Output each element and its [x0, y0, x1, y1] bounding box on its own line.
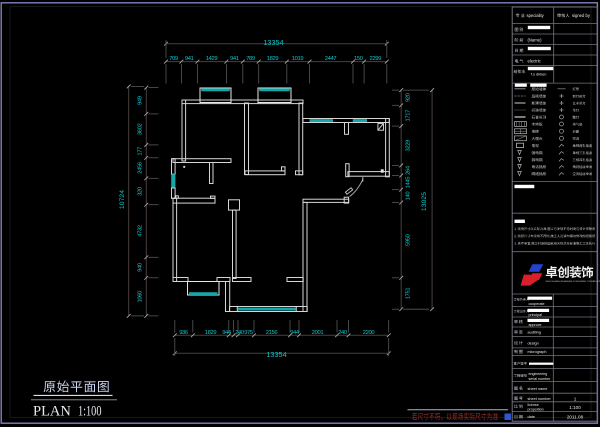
- svg-text:941: 941: [230, 56, 239, 62]
- svg-text:975: 975: [244, 330, 253, 336]
- svg-text:5950: 5950: [406, 234, 412, 246]
- svg-text:10724: 10724: [119, 190, 126, 209]
- svg-text:electric: electric: [528, 59, 541, 64]
- svg-text:936: 936: [179, 330, 188, 336]
- svg-text:2299: 2299: [370, 56, 382, 62]
- svg-text:design: design: [528, 341, 539, 345]
- svg-text:1829: 1829: [205, 330, 217, 336]
- svg-text:240: 240: [235, 330, 244, 336]
- svg-text:2447: 2447: [325, 56, 337, 62]
- svg-text:941: 941: [185, 56, 194, 62]
- svg-text:f.s dimen: f.s dimen: [531, 73, 546, 77]
- svg-text:320: 320: [137, 187, 143, 196]
- svg-text:1429: 1429: [206, 56, 218, 62]
- svg-text:944: 944: [222, 330, 232, 336]
- svg-text:cooperate: cooperate: [529, 302, 545, 306]
- svg-text:2001: 2001: [312, 330, 324, 336]
- svg-text:1019: 1019: [292, 56, 304, 62]
- svg-text:3229: 3229: [406, 140, 412, 152]
- svg-text:1751: 1751: [406, 288, 412, 300]
- svg-text:150: 150: [354, 56, 363, 62]
- svg-text:13354: 13354: [266, 350, 286, 359]
- svg-text:signed by: signed by: [572, 13, 591, 18]
- svg-text:ZHUOCHUANG ZHUANGSHI GONGCHENG: ZHUOCHUANG ZHUANGSHI GONGCHENG YOUXIAN G…: [546, 280, 600, 283]
- svg-text:approve: approve: [529, 323, 542, 327]
- svg-text:13025: 13025: [421, 192, 428, 211]
- svg-text:709: 709: [169, 56, 178, 62]
- svg-text:sheet name: sheet name: [528, 387, 548, 391]
- svg-text:1:100: 1:100: [78, 404, 102, 420]
- svg-text:speciality: speciality: [527, 13, 545, 18]
- svg-text:264: 264: [406, 165, 412, 175]
- svg-text:1829: 1829: [267, 56, 279, 62]
- svg-text:1445: 1445: [406, 177, 412, 189]
- svg-text:4732: 4732: [137, 225, 143, 237]
- svg-text:(Name): (Name): [528, 38, 543, 43]
- svg-text:auditing: auditing: [528, 331, 541, 335]
- svg-text:140: 140: [406, 192, 412, 201]
- svg-text:1:100: 1:100: [569, 405, 581, 410]
- svg-text:1: 1: [574, 396, 577, 401]
- svg-text:944: 944: [290, 330, 300, 336]
- svg-text:date: date: [528, 415, 535, 419]
- svg-text:serial number: serial number: [529, 377, 552, 381]
- svg-text:949: 949: [137, 96, 143, 105]
- svg-text:940: 940: [137, 263, 143, 272]
- svg-text:2011.08: 2011.08: [567, 414, 584, 419]
- svg-text:sheet number: sheet number: [528, 397, 552, 401]
- svg-text:3602: 3602: [137, 124, 143, 136]
- svg-text:1717: 1717: [406, 110, 412, 122]
- svg-text:engineering: engineering: [529, 372, 548, 376]
- svg-text:177: 177: [137, 147, 143, 156]
- svg-text:PLAN: PLAN: [33, 404, 71, 420]
- svg-text:2456: 2456: [137, 162, 143, 174]
- svg-text:2156: 2156: [266, 330, 278, 336]
- svg-text:micrograph: micrograph: [528, 350, 547, 354]
- svg-text:principal: principal: [529, 313, 543, 317]
- svg-text:920: 920: [406, 93, 412, 102]
- svg-text:proportion: proportion: [528, 408, 544, 412]
- svg-text:2200: 2200: [363, 330, 375, 336]
- svg-text:240: 240: [338, 330, 347, 336]
- svg-text:1060: 1060: [137, 291, 143, 303]
- svg-text:789: 789: [246, 56, 255, 62]
- svg-text:license: license: [528, 403, 539, 407]
- svg-text:13354: 13354: [263, 38, 283, 47]
